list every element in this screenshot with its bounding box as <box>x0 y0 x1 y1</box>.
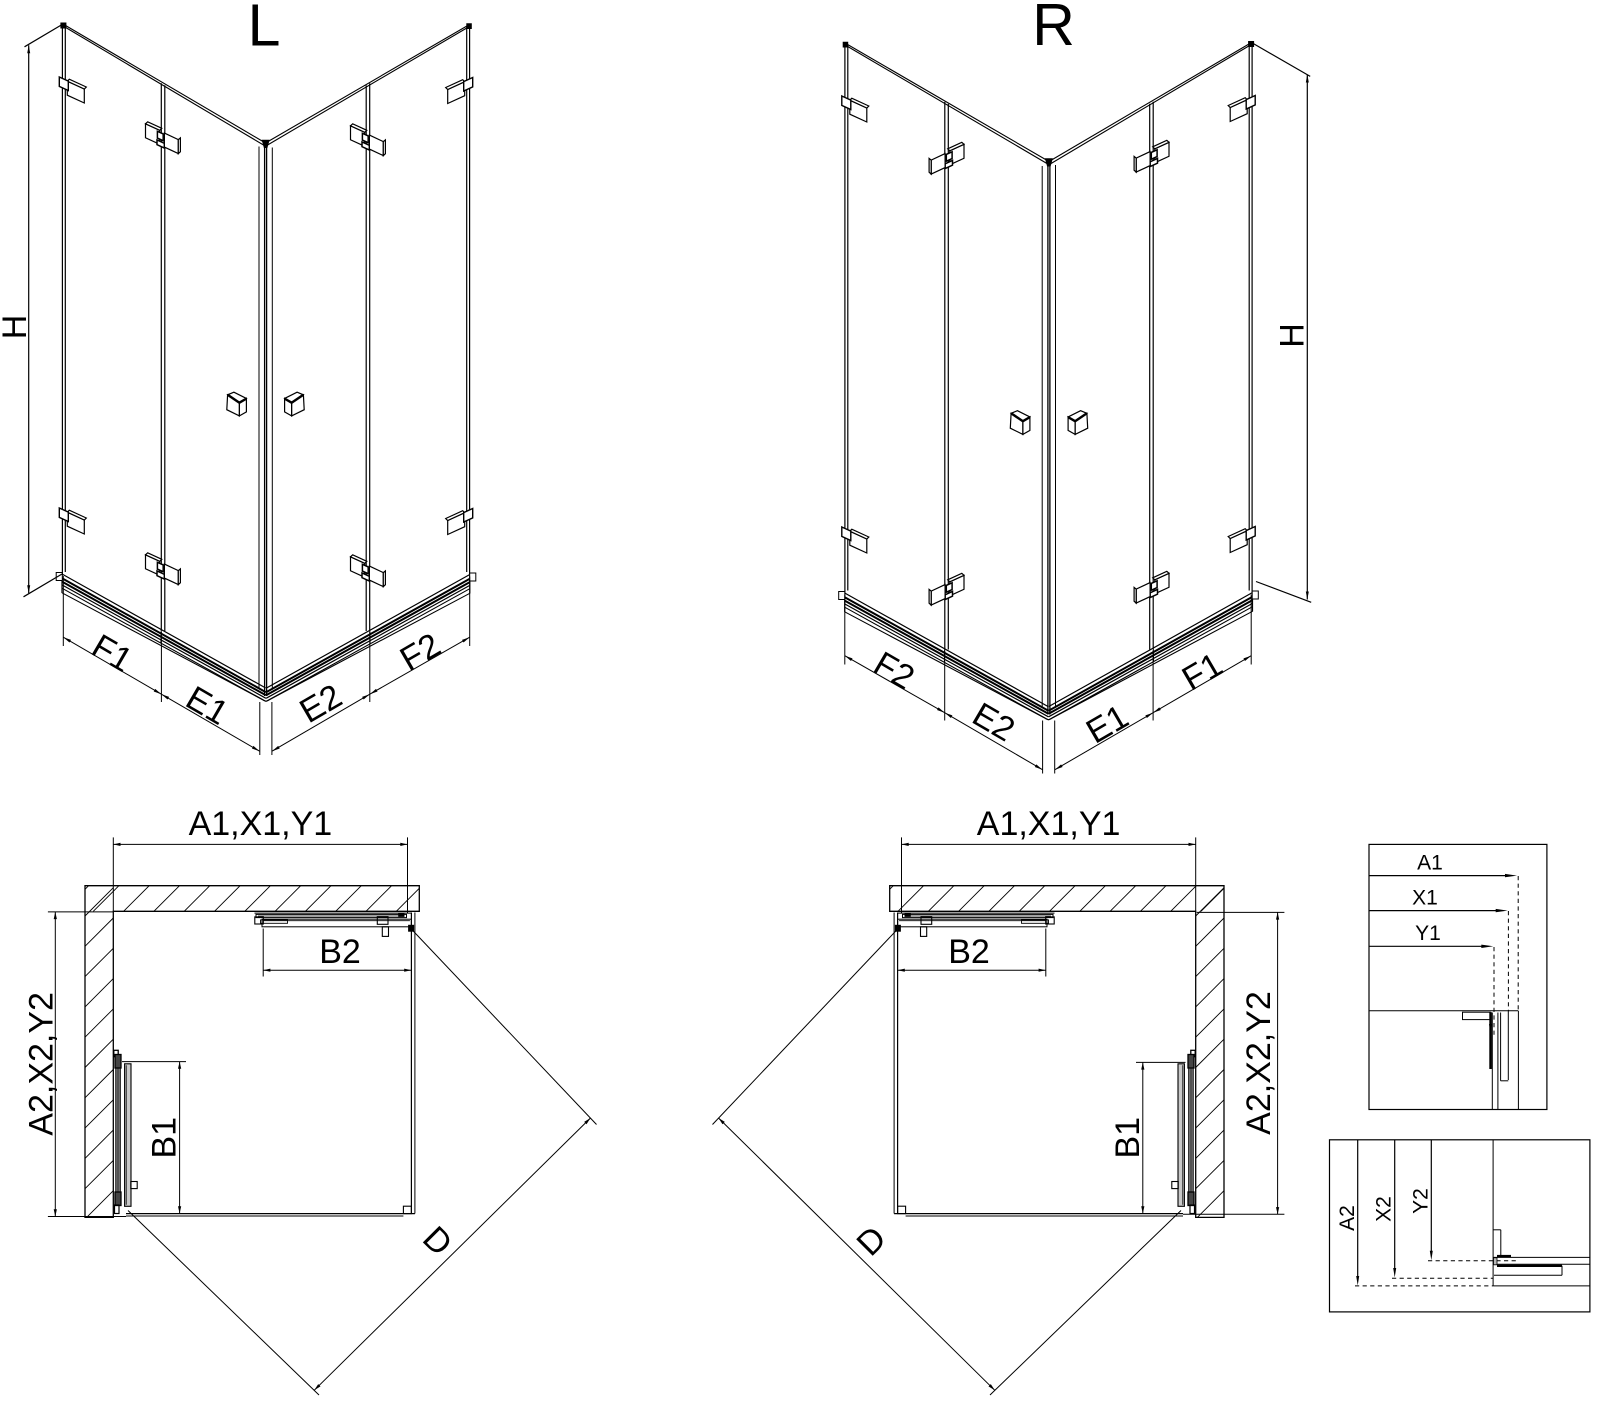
svg-text:E1: E1 <box>180 679 235 733</box>
svg-text:L: L <box>248 0 281 59</box>
svg-text:H: H <box>1274 323 1312 348</box>
svg-text:A1,X1,Y1: A1,X1,Y1 <box>977 805 1121 843</box>
svg-text:B2: B2 <box>948 933 990 971</box>
svg-text:X1: X1 <box>1412 887 1438 910</box>
svg-text:Y2: Y2 <box>1409 1188 1432 1214</box>
svg-text:F1: F1 <box>1176 646 1229 699</box>
svg-text:X2: X2 <box>1373 1196 1396 1222</box>
svg-text:F2: F2 <box>867 644 920 697</box>
svg-text:B2: B2 <box>319 933 361 971</box>
svg-text:D: D <box>850 1219 894 1263</box>
svg-text:E2: E2 <box>966 696 1021 750</box>
svg-text:E1: E1 <box>1080 698 1135 752</box>
svg-text:A1: A1 <box>1417 852 1443 875</box>
svg-text:Y1: Y1 <box>1415 922 1441 945</box>
svg-text:A2,X2,Y2: A2,X2,Y2 <box>22 992 60 1136</box>
svg-text:E2: E2 <box>293 677 348 731</box>
svg-text:A2,X2,Y2: A2,X2,Y2 <box>1240 991 1278 1135</box>
svg-text:A2: A2 <box>1336 1205 1359 1231</box>
svg-text:B1: B1 <box>146 1117 184 1159</box>
svg-text:F2: F2 <box>394 626 447 679</box>
svg-text:F1: F1 <box>85 627 138 680</box>
svg-text:A1,X1,Y1: A1,X1,Y1 <box>189 805 333 843</box>
svg-text:B1: B1 <box>1109 1117 1147 1159</box>
svg-text:R: R <box>1032 0 1075 58</box>
svg-text:H: H <box>0 315 34 340</box>
svg-text:D: D <box>415 1219 459 1263</box>
